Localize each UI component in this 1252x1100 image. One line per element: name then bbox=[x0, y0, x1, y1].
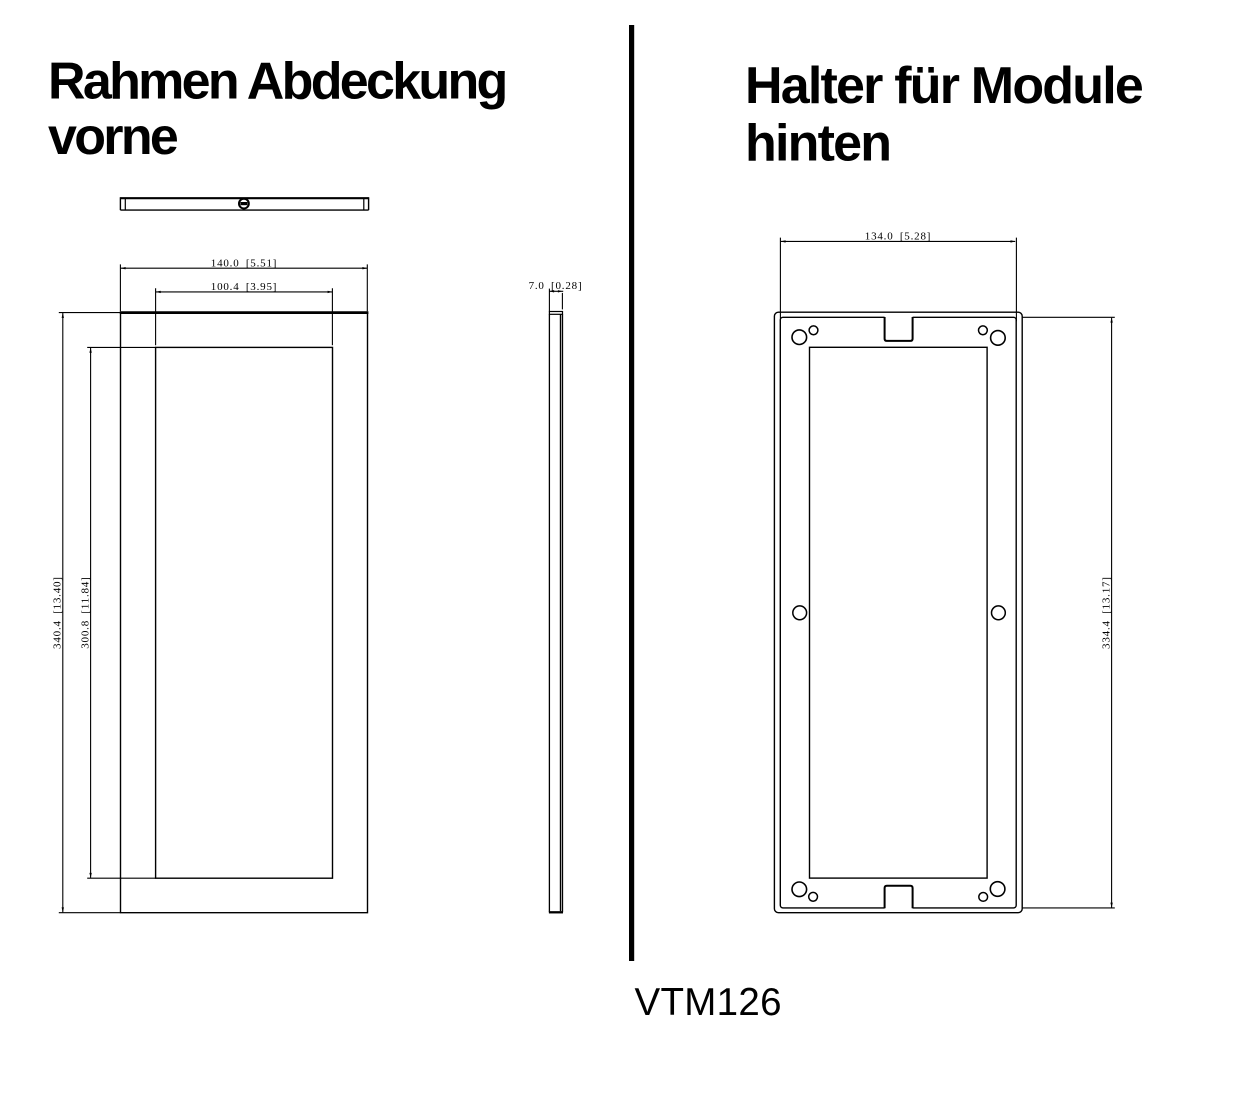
svg-text:334.4 [13.17]: 334.4 [13.17] bbox=[1100, 576, 1112, 649]
svg-text:Halter für Module: Halter für Module bbox=[745, 57, 1143, 115]
svg-text:134.0 [5.28]: 134.0 [5.28] bbox=[865, 231, 931, 243]
svg-text:300.8 [11.84]: 300.8 [11.84] bbox=[79, 576, 91, 648]
svg-text:7.0 [0.28]: 7.0 [0.28] bbox=[529, 280, 583, 292]
svg-text:100.4 [3.95]: 100.4 [3.95] bbox=[211, 281, 277, 293]
svg-text:Rahmen Abdeckung: Rahmen Abdeckung bbox=[48, 53, 506, 111]
svg-text:vorne: vorne bbox=[48, 108, 178, 166]
svg-text:hinten: hinten bbox=[745, 114, 890, 172]
svg-text:140.0 [5.51]: 140.0 [5.51] bbox=[211, 257, 277, 269]
svg-text:VTM126: VTM126 bbox=[635, 981, 782, 1024]
svg-text:340.4 [13.40]: 340.4 [13.40] bbox=[52, 576, 64, 649]
